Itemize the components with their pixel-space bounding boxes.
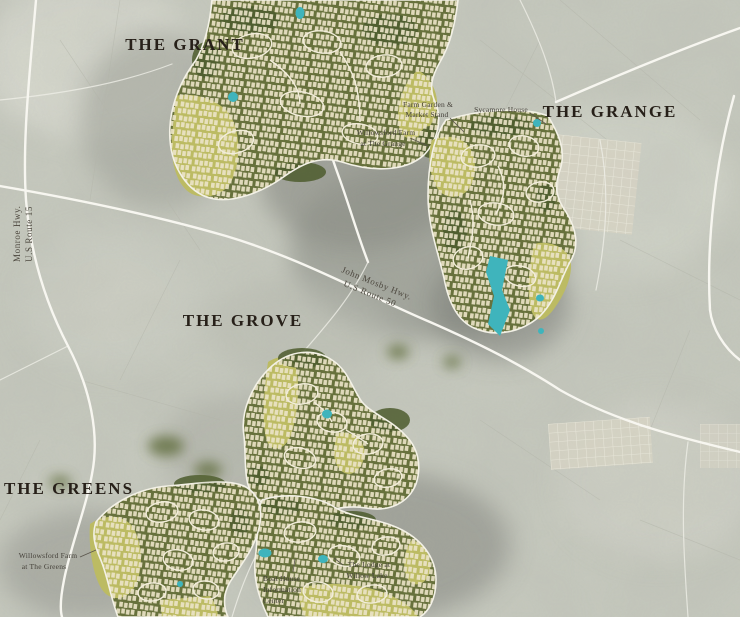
svg-text:Willowsford Farm: Willowsford Farm [19, 551, 78, 560]
svg-text:Monroe Hwy.: Monroe Hwy. [12, 205, 22, 262]
svg-text:U.S Route 15: U.S Route 15 [24, 206, 34, 262]
svg-text:Center: Center [263, 596, 284, 605]
svg-text:Market Stand: Market Stand [405, 110, 448, 119]
svg-text:Sycamore House: Sycamore House [474, 105, 528, 114]
title-the-greens: THE GREENS [4, 479, 134, 498]
willowsford-community-map: Farm Garden & Market Stand Sycamore Hous… [0, 0, 740, 617]
svg-text:Boat House: Boat House [263, 574, 301, 583]
title-the-grove: THE GROVE [183, 311, 304, 330]
svg-text:The Lodge at: The Lodge at [348, 560, 391, 569]
svg-text:Willowsford Farm: Willowsford Farm [357, 128, 416, 137]
willow-lake [259, 549, 272, 558]
svg-text:at The Grange: at The Grange [360, 139, 406, 148]
label-farm-garden-market-stand: Farm Garden & Market Stand [403, 100, 453, 119]
title-the-grant: THE GRANT [125, 35, 245, 54]
svg-text:Willow Lake: Willow Lake [346, 571, 388, 580]
title-the-grange: THE GRANGE [543, 102, 678, 121]
svg-text:Farm Garden &: Farm Garden & [403, 100, 453, 109]
label-sycamore-house: Sycamore House [474, 105, 528, 114]
svg-text:at The Greens: at The Greens [22, 562, 67, 571]
map-viewport: Farm Garden & Market Stand Sycamore Hous… [0, 0, 740, 617]
svg-text:Information: Information [263, 585, 301, 594]
